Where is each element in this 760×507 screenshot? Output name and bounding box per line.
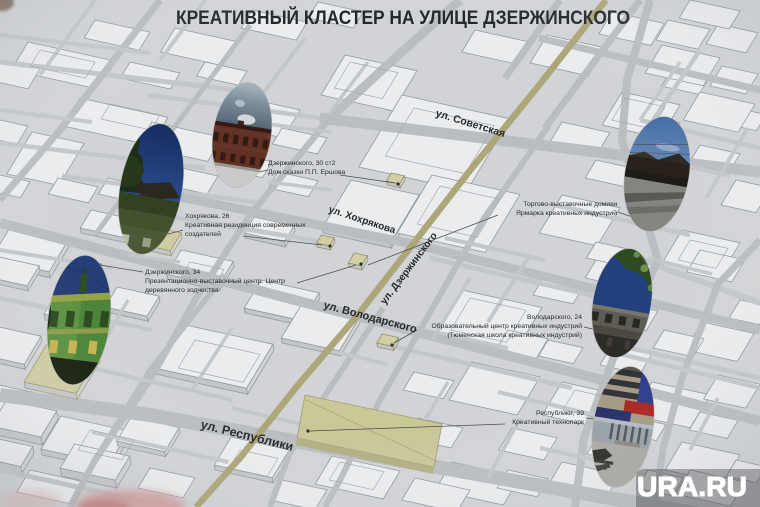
svg-text:URA.RU: URA.RU (637, 471, 747, 502)
